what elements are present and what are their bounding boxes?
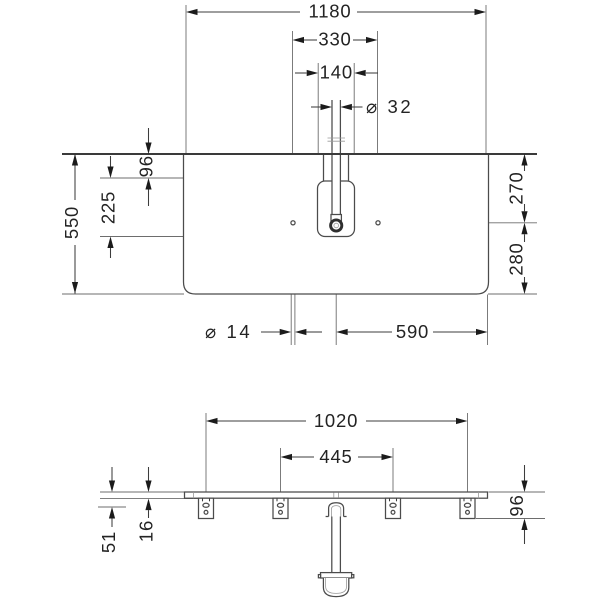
- arrowhead: [521, 211, 527, 223]
- arrowhead: [145, 499, 151, 511]
- dim-270-label: 270: [506, 171, 527, 204]
- arrowhead: [456, 418, 468, 424]
- tap-hole-left: [291, 221, 295, 225]
- drain-pipe: [332, 517, 341, 574]
- dim-51: 51: [98, 467, 119, 553]
- mounting-bracket-3: [386, 498, 401, 518]
- arrowhead: [521, 154, 527, 166]
- cup-rim: [321, 573, 352, 578]
- dim-550-label: 550: [61, 206, 82, 239]
- dim-96-plan-label: 96: [136, 155, 157, 177]
- arrowhead: [476, 329, 488, 335]
- arrowhead: [145, 143, 151, 155]
- siphon-cup: [318, 573, 353, 597]
- plan-view: 1180 330 140 ⌀ 32: [61, 1, 537, 346]
- dim-1020-label: 1020: [314, 410, 358, 431]
- dim-16-label: 16: [136, 520, 157, 542]
- drain-ring: [331, 220, 342, 231]
- arrowhead: [521, 223, 527, 235]
- arrowhead: [307, 70, 319, 76]
- arrowhead: [186, 9, 198, 15]
- arrowhead: [521, 481, 527, 493]
- dim-225-label: 225: [98, 191, 119, 224]
- dim-96-plan: 96: [136, 128, 157, 206]
- faucet-slot-fill: [332, 100, 340, 214]
- arrowhead: [281, 454, 293, 460]
- arrowhead: [206, 418, 218, 424]
- arrowhead: [366, 37, 378, 43]
- dim-140: 140: [295, 62, 378, 83]
- arrowhead: [109, 507, 115, 519]
- arrowhead: [109, 481, 115, 493]
- drain-outlet-fitting: [326, 503, 347, 517]
- dim-330-label: 330: [318, 29, 351, 50]
- dim-225: 225: [98, 156, 119, 258]
- console-slab: [185, 492, 488, 498]
- dim-445: 445: [281, 446, 394, 467]
- dim-280-label: 280: [506, 242, 527, 275]
- dim-140-label: 140: [320, 62, 353, 83]
- bracket-plate: [273, 498, 288, 518]
- arrowhead: [293, 37, 305, 43]
- dim-faucet-hole-label: ⌀ 32: [366, 96, 413, 117]
- arrowhead: [354, 70, 366, 76]
- dim-445-label: 445: [319, 446, 352, 467]
- bracket-plate: [386, 498, 401, 518]
- bracket-plate: [460, 498, 475, 518]
- mounting-bracket-4: [460, 498, 475, 518]
- dim-1020: 1020: [206, 410, 468, 431]
- arrowhead: [145, 178, 151, 190]
- dim-1180-label: 1180: [309, 1, 352, 22]
- cup-body: [323, 578, 348, 597]
- dim-550: 550: [61, 154, 82, 294]
- dim-1180: 1180: [186, 1, 486, 22]
- drain-dome: [329, 503, 344, 517]
- arrowhead: [521, 519, 527, 531]
- arrowhead: [475, 9, 487, 15]
- arrowhead: [382, 454, 394, 460]
- dim-tap-hole: ⌀ 14: [205, 321, 322, 342]
- arrowhead: [107, 167, 113, 179]
- arrowhead: [145, 481, 151, 493]
- cup-rim-tab: [352, 575, 354, 578]
- dim-96-front: 96: [506, 465, 528, 544]
- dim-590-label: 590: [396, 321, 429, 342]
- arrowhead: [340, 104, 352, 110]
- dim-16: 16: [136, 467, 157, 542]
- dim-590: 590: [336, 321, 487, 342]
- dim-51-label: 51: [98, 531, 119, 553]
- arrowhead: [72, 282, 78, 294]
- arrowhead: [336, 329, 348, 335]
- arrowhead: [521, 283, 527, 295]
- arrowhead: [280, 329, 292, 335]
- dim-tap-hole-label: ⌀ 14: [205, 321, 252, 342]
- front-view: 1020 445 51 16: [98, 410, 545, 597]
- arrowhead: [72, 154, 78, 166]
- dim-96-front-label: 96: [506, 494, 527, 516]
- arrowhead: [107, 237, 113, 249]
- arrowhead: [295, 329, 307, 335]
- cup-rim-tab: [318, 575, 320, 578]
- technical-drawing: 1180 330 140 ⌀ 32: [0, 0, 600, 600]
- dim-faucet-hole: ⌀ 32: [311, 96, 413, 117]
- tap-hole-right: [376, 221, 380, 225]
- dim-330: 330: [293, 29, 378, 50]
- dim-270-280: 270 280: [506, 154, 528, 294]
- mounting-bracket-2: [273, 498, 288, 518]
- mounting-bracket-1: [199, 498, 214, 518]
- bracket-plate: [199, 498, 214, 518]
- arrowhead: [321, 104, 333, 110]
